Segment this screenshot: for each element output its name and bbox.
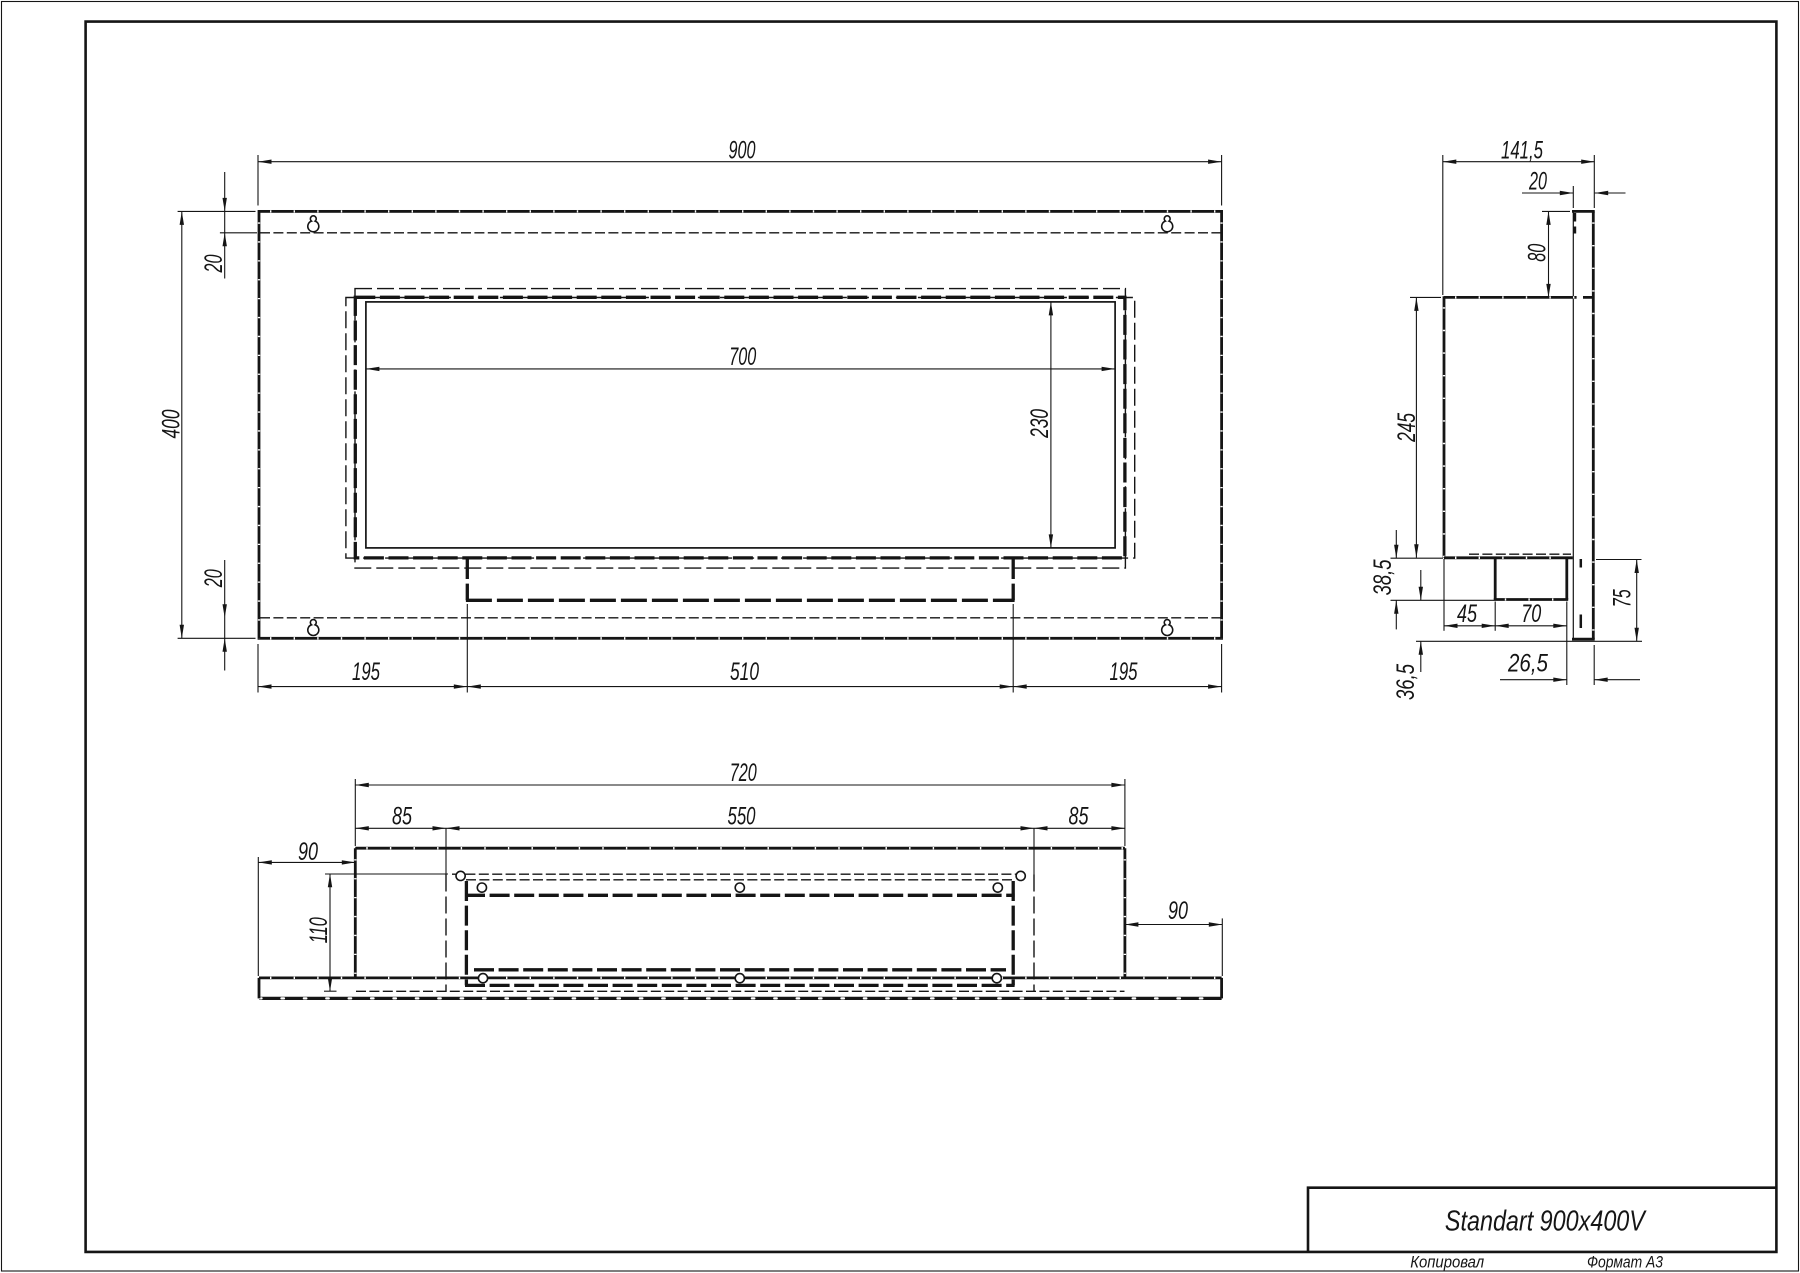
svg-text:900: 900 — [729, 137, 756, 165]
svg-text:400: 400 — [157, 409, 185, 438]
svg-text:720: 720 — [730, 759, 757, 787]
svg-text:38,5: 38,5 — [1369, 559, 1397, 595]
svg-text:510: 510 — [730, 658, 759, 686]
svg-text:Standart 900x400V: Standart 900x400V — [1445, 1206, 1647, 1238]
svg-text:70: 70 — [1521, 600, 1541, 628]
svg-text:75: 75 — [1609, 589, 1637, 607]
svg-text:80: 80 — [1523, 244, 1551, 262]
svg-text:45: 45 — [1457, 600, 1477, 628]
svg-text:Копировал: Копировал — [1410, 1254, 1484, 1272]
svg-text:36,5: 36,5 — [1392, 664, 1420, 700]
svg-text:20: 20 — [1528, 168, 1547, 196]
svg-text:20: 20 — [200, 254, 228, 273]
svg-text:230: 230 — [1026, 409, 1054, 439]
svg-text:141,5: 141,5 — [1501, 137, 1543, 165]
svg-text:550: 550 — [728, 803, 756, 831]
svg-text:195: 195 — [352, 658, 380, 686]
svg-text:90: 90 — [1168, 897, 1188, 925]
svg-text:110: 110 — [305, 917, 333, 943]
svg-text:85: 85 — [1069, 803, 1089, 831]
svg-text:700: 700 — [729, 343, 756, 371]
svg-text:245: 245 — [1393, 413, 1421, 443]
svg-text:90: 90 — [298, 838, 318, 866]
svg-text:26,5: 26,5 — [1507, 649, 1548, 677]
svg-text:85: 85 — [392, 803, 412, 831]
svg-text:20: 20 — [200, 569, 228, 588]
svg-text:Формат А3: Формат А3 — [1587, 1254, 1664, 1272]
svg-text:195: 195 — [1110, 658, 1138, 686]
